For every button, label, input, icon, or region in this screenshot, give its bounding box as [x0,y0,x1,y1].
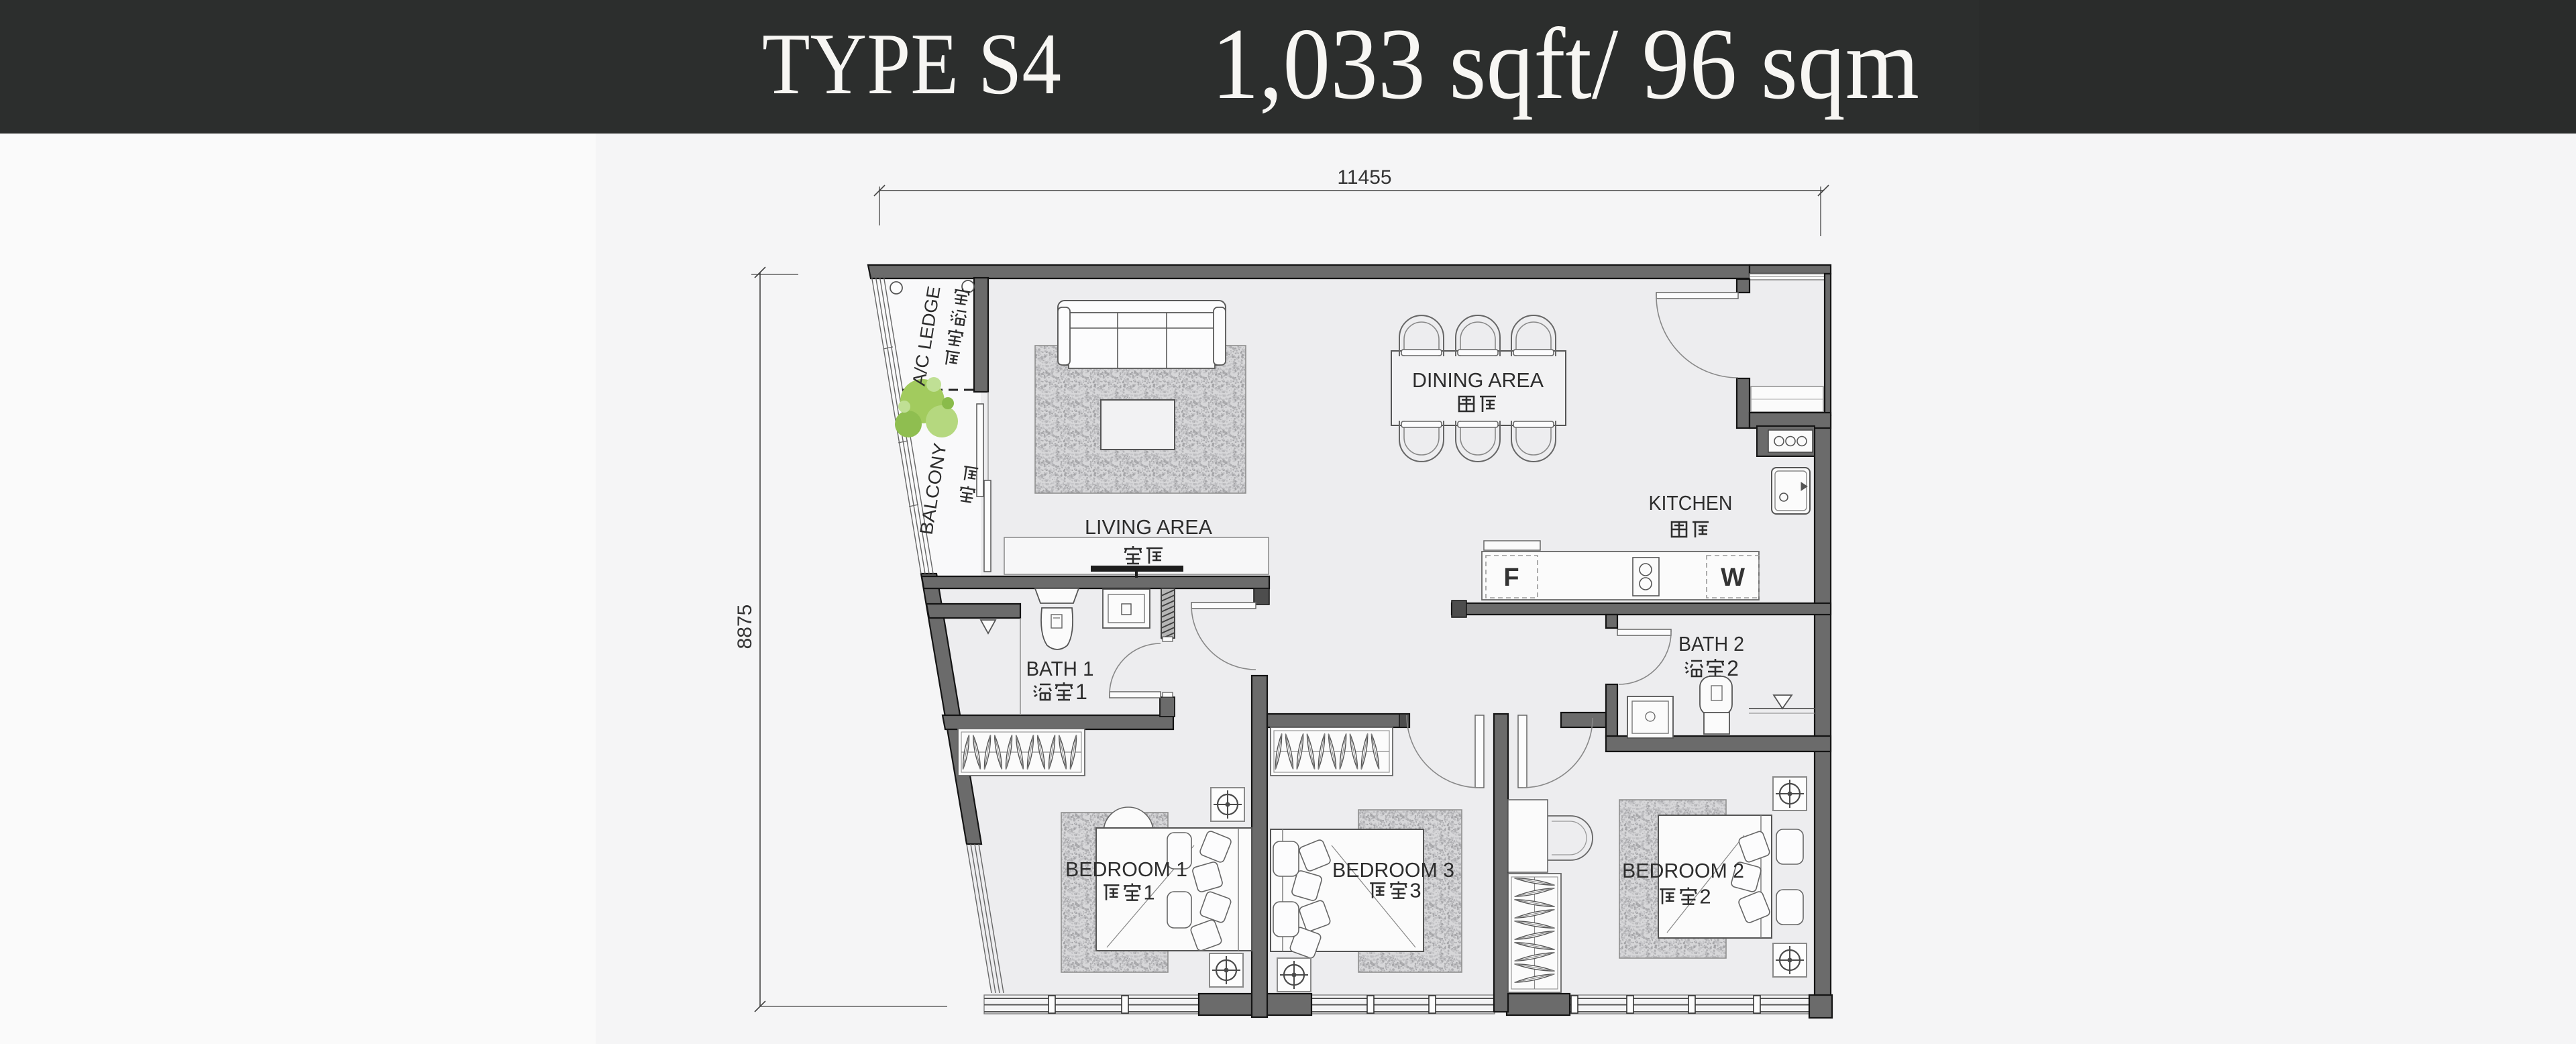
svg-text:3: 3 [1409,879,1421,902]
svg-text:8875: 8875 [734,605,756,649]
svg-text:BEDROOM 3: BEDROOM 3 [1332,858,1454,882]
svg-text:1: 1 [1143,881,1155,904]
svg-text:BEDROOM 2: BEDROOM 2 [1622,859,1744,882]
svg-text:DINING AREA: DINING AREA [1412,368,1544,392]
svg-text:11455: 11455 [1337,166,1391,189]
svg-text:2: 2 [1727,656,1739,680]
svg-text:BATH 2: BATH 2 [1678,632,1744,656]
svg-text:KITCHEN: KITCHEN [1649,491,1733,515]
svg-text:W: W [1721,564,1745,592]
svg-text:F: F [1503,564,1519,592]
svg-text:BEDROOM 1: BEDROOM 1 [1065,857,1187,881]
svg-text:2: 2 [1699,885,1711,908]
svg-text:1,033 sqft/ 96 sqm: 1,033 sqft/ 96 sqm [1212,7,1919,120]
svg-text:LIVING AREA: LIVING AREA [1085,515,1212,539]
svg-text:TYPE S4: TYPE S4 [762,15,1061,113]
svg-text:BATH 1: BATH 1 [1026,657,1094,680]
svg-text:1: 1 [1075,680,1087,704]
